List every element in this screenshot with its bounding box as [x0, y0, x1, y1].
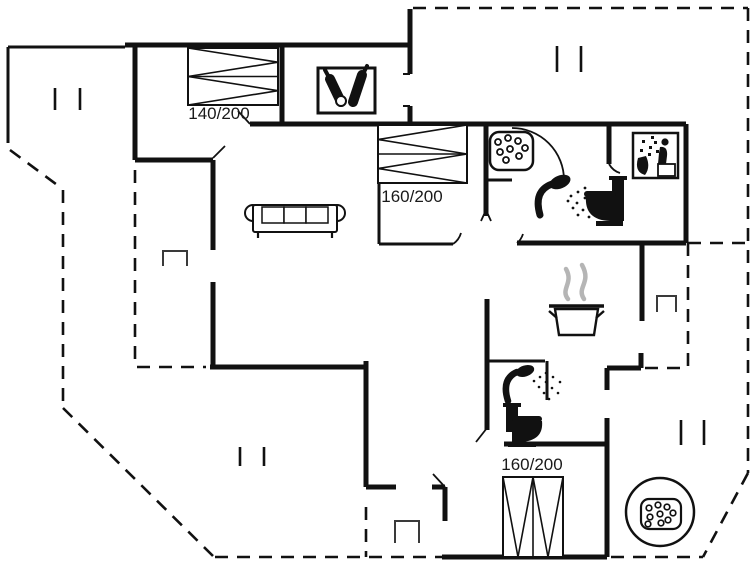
steam-icon	[565, 265, 585, 299]
double-bed-1	[188, 48, 278, 105]
shower-icon-bathroom2	[506, 363, 561, 401]
double-bed-2	[378, 125, 467, 183]
terrace-boundary	[10, 8, 748, 557]
sauna-icon	[633, 133, 678, 178]
washing-machine-icon	[490, 132, 533, 170]
bed-size-label-1: 140/200	[188, 104, 249, 123]
bed-size-label-3: 160/200	[501, 455, 562, 474]
wine-bottles-icon	[318, 66, 375, 113]
carport-walls	[8, 47, 125, 143]
double-bed-3	[503, 477, 563, 557]
cooking-pot-icon	[549, 265, 604, 335]
window-marker	[55, 46, 704, 466]
bed-size-label-2: 160/200	[381, 187, 442, 206]
entry-door-opening	[403, 74, 410, 106]
niche-marker	[163, 251, 676, 543]
whirlpool-icon	[626, 478, 694, 546]
floor-plan-drawing: 140/200 160/200 160/200	[0, 0, 755, 566]
floor-plan: 140/200 160/200 160/200	[0, 0, 755, 566]
sofa-icon	[245, 205, 345, 238]
toilet-icon-bathroom1	[584, 176, 627, 226]
toilet-icon-bathroom2	[503, 403, 542, 447]
